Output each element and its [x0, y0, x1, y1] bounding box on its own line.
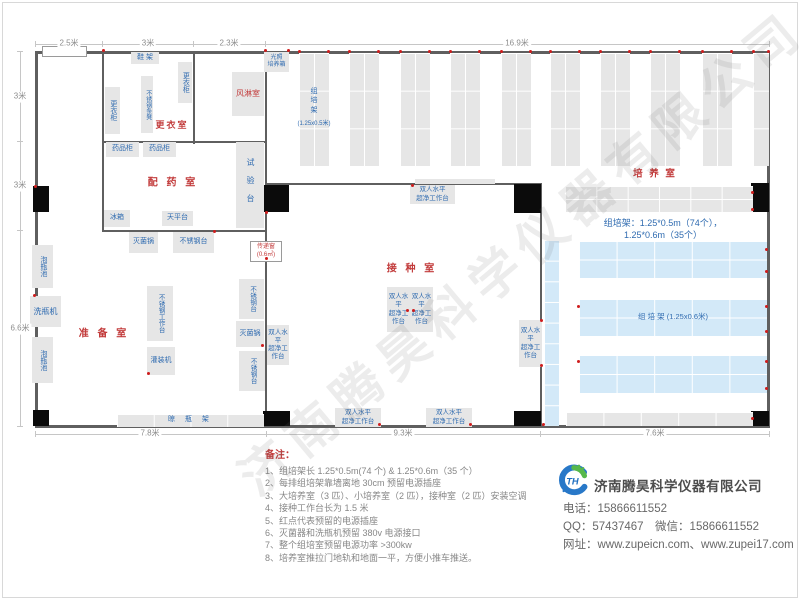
dim-bottom-3: 7.6米: [643, 429, 666, 440]
shelf-rack: [753, 53, 769, 166]
power-outlet-dot: [578, 50, 581, 53]
power-outlet-dot: [261, 344, 264, 347]
power-outlet-dot: [765, 387, 768, 390]
shelf-rack: [450, 53, 480, 166]
door-opening: [263, 411, 290, 426]
dimension-line: [102, 41, 103, 47]
door-opening: [514, 184, 541, 213]
rack-label-large: 组 培 架 (1.25x0.6米): [638, 312, 708, 322]
door-opening: [514, 411, 541, 426]
power-outlet-dot: [377, 50, 380, 53]
power-outlet-dot: [542, 423, 545, 426]
room-label-dressing: 更衣室: [155, 119, 188, 131]
equipment-box: 光照 培养箱: [264, 52, 289, 72]
company-contact-line: QQ：57437467 微信：15866611552: [563, 518, 794, 536]
power-outlet-dot: [102, 49, 105, 52]
notes-title: 备注：: [265, 446, 527, 461]
power-outlet-dot: [264, 49, 267, 52]
power-outlet-dot: [265, 257, 268, 260]
company-contact-line: 网址：www.zupeicn.com、www.zupei17.com: [563, 536, 794, 554]
equipment-box: 更衣柜: [105, 87, 120, 134]
room-label-inoculation: 接 种 室: [387, 262, 438, 276]
power-outlet-dot: [701, 50, 704, 53]
shelf-rack: [501, 53, 531, 166]
dim-left-1: 3米: [12, 92, 28, 103]
equipment-box: 灌装机: [147, 347, 175, 375]
dimension-line: [769, 41, 770, 47]
dim-bottom-2: 9.3米: [391, 429, 414, 440]
note-item: 6、灭菌器和洗瓶机预留 380v 电源接口: [265, 527, 527, 539]
shelf-rack: [544, 240, 559, 426]
equipment-box: 不锈钢台: [173, 232, 214, 253]
dimension-line: [17, 141, 23, 142]
dimension-line: [20, 52, 21, 427]
power-outlet-dot: [327, 50, 330, 53]
equipment-box: 鞋 架: [131, 52, 159, 64]
equipment-box: 药品柜: [143, 142, 176, 157]
note-item: 7、整个组培室预留电源功率 >300kw: [265, 539, 527, 551]
notes-panel: 备注： 1、组培架长 1.25*0.5m(74 个) & 1.25*0.6m（3…: [265, 446, 527, 564]
power-outlet-dot: [765, 330, 768, 333]
equipment-box: 双人水平 超净工作台: [267, 325, 289, 365]
dim-top-4: 16.9米: [503, 39, 531, 50]
wall: [193, 51, 195, 144]
power-outlet-dot: [765, 248, 768, 251]
equipment-box: 不锈钢工作台: [147, 286, 173, 341]
dimension-line: [540, 431, 541, 437]
company-logo-icon: TH: [556, 463, 590, 497]
power-outlet-dot: [765, 360, 768, 363]
shelf-rack: [400, 53, 430, 166]
power-outlet-dot: [752, 50, 755, 53]
equipment-box: 灭菌锅: [129, 232, 158, 253]
rack-label-small-size: (1.25x0.5米): [297, 120, 330, 128]
note-item: 3、大培养室（3 匹）、小培养室（2 匹），接种室（2 匹）安装空调: [265, 490, 527, 502]
room-label-culture: 培 养 室: [633, 169, 677, 182]
note-item: 8、培养室推拉门地轨和地面一平，方便小推车推送。: [265, 552, 527, 564]
equipment-box: 不锈钢台: [239, 351, 265, 391]
power-outlet-dot: [628, 50, 631, 53]
power-outlet-dot: [577, 305, 580, 308]
svg-text:TH: TH: [566, 476, 579, 486]
wall: [265, 183, 542, 185]
equipment-box: 双人水平 超净工作台: [410, 185, 455, 204]
power-outlet-dot: [529, 50, 532, 53]
equipment-box: 不锈钢条凳: [141, 76, 153, 133]
power-outlet-dot: [406, 309, 409, 312]
power-outlet-dot: [399, 50, 402, 53]
power-outlet-dot: [751, 191, 754, 194]
equipment-box: 双人水平 超净工作台: [426, 408, 472, 427]
equipment-box: 不锈钢台: [239, 279, 264, 319]
dimension-line: [193, 41, 194, 47]
dimension-line: [265, 41, 266, 47]
shelf-rack: [600, 53, 630, 166]
wall: [265, 51, 267, 428]
power-outlet-dot: [213, 230, 216, 233]
rack-label-small: 组 培 架: [311, 87, 318, 115]
power-outlet-dot: [147, 372, 150, 375]
power-outlet-dot: [411, 184, 414, 187]
power-outlet-dot: [348, 50, 351, 53]
company-name: 济南腾昊科学仪器有限公司: [594, 475, 762, 495]
notes-list: 1、组培架长 1.25*0.5m(74 个) & 1.25*0.6m（35 个）…: [265, 465, 527, 564]
shelf-rack: [650, 53, 680, 166]
dimension-line: [35, 431, 36, 437]
power-outlet-dot: [412, 309, 415, 312]
shelf-rack: [579, 241, 767, 278]
shelf-rack: [415, 179, 495, 184]
power-outlet-dot: [767, 50, 770, 53]
power-outlet-dot: [298, 50, 301, 53]
power-outlet-dot: [751, 417, 754, 420]
room-label-pharmacy: 配 药 室: [148, 176, 199, 190]
shelf-rack: [579, 355, 767, 393]
dimension-line: [17, 426, 23, 427]
equipment-box: 天平台: [162, 211, 193, 226]
dim-left-2: 3米: [12, 181, 28, 192]
room-label-preparation: 准 备 室: [79, 327, 130, 341]
note-item: 5、红点代表预留的电源插座: [265, 515, 527, 527]
door-opening: [33, 410, 49, 426]
power-outlet-dot: [287, 49, 290, 52]
dimension-line: [17, 51, 23, 52]
power-outlet-dot: [549, 50, 552, 53]
power-outlet-dot: [34, 185, 37, 188]
dimension-line: [35, 41, 36, 47]
dimension-line: [17, 230, 23, 231]
dim-top-2: 3米: [140, 39, 156, 50]
power-outlet-dot: [678, 50, 681, 53]
shelf-rack: [702, 53, 732, 166]
equipment-box: 双人水平 超净工作台: [519, 320, 542, 367]
dim-left-3: 6.6米: [8, 324, 31, 335]
power-outlet-dot: [428, 50, 431, 53]
note-item: 1、组培架长 1.25*0.5m(74 个) & 1.25*0.6m（35 个）: [265, 465, 527, 477]
power-outlet-dot: [765, 305, 768, 308]
power-outlet-dot: [751, 208, 754, 211]
power-outlet-dot: [649, 50, 652, 53]
equipment-box: 洗瓶机: [30, 296, 61, 327]
power-outlet-dot: [599, 50, 602, 53]
power-outlet-dot: [469, 423, 472, 426]
power-outlet-dot: [449, 50, 452, 53]
equipment-box: 泡瓶池: [32, 337, 53, 383]
dimension-line: [769, 431, 770, 437]
wall: [540, 183, 542, 428]
company-contact-line: 电话：15866611552: [563, 500, 794, 518]
power-outlet-dot: [378, 423, 381, 426]
dim-top-1: 2.5米: [57, 39, 80, 50]
equipment-box: 双人水平 超净工作台: [335, 408, 381, 427]
equipment-box: 冰箱: [104, 210, 130, 227]
power-outlet-dot: [33, 294, 36, 297]
shelf-rack: [566, 412, 753, 426]
note-item: 2、每排组培架靠墙离地 30cm 预留电源插座: [265, 477, 527, 489]
power-outlet-dot: [540, 319, 543, 322]
power-outlet-dot: [765, 270, 768, 273]
note-item: 4、接种工作台长为 1.5 米: [265, 502, 527, 514]
rack-caption: 组培架：1.25*0.5m（74个），1.25*0.6m（35个）: [595, 217, 732, 241]
shelf-rack: [550, 53, 580, 166]
equipment-box: 泡瓶池: [32, 245, 53, 288]
dim-bottom-1: 7.8米: [138, 429, 161, 440]
dimension-line: [266, 431, 267, 437]
power-outlet-dot: [540, 364, 543, 367]
power-outlet-dot: [265, 211, 268, 214]
company-contacts: 电话：15866611552QQ：57437467 微信：15866611552…: [563, 500, 794, 554]
power-outlet-dot: [478, 50, 481, 53]
door-opening: [261, 185, 289, 212]
equipment-box: 晾 瓶 架: [117, 414, 264, 427]
equipment-box: 更衣柜: [178, 62, 192, 103]
shelf-rack: [565, 186, 753, 212]
power-outlet-dot: [500, 50, 503, 53]
equipment-box: 药品柜: [106, 142, 139, 157]
door-opening: [33, 186, 49, 212]
equipment-box: 试验台: [236, 142, 264, 228]
equipment-box: 灭菌锅: [236, 321, 264, 347]
equipment-box: 风淋室: [232, 72, 264, 116]
dim-top-3: 2.3米: [217, 39, 240, 50]
power-outlet-dot: [577, 360, 580, 363]
shelf-rack: [349, 53, 379, 166]
power-outlet-dot: [730, 50, 733, 53]
